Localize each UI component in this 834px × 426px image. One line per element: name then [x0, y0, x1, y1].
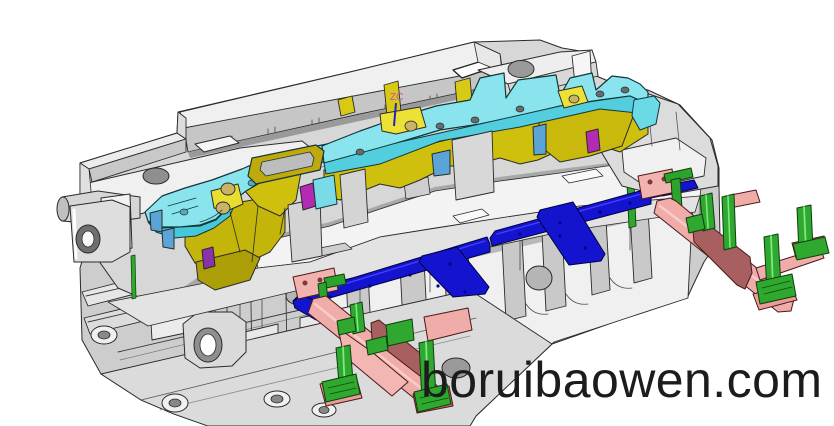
- svg-text:ZC: ZC: [390, 92, 403, 103]
- svg-text:boruibaowen.com: boruibaowen.com: [421, 352, 822, 408]
